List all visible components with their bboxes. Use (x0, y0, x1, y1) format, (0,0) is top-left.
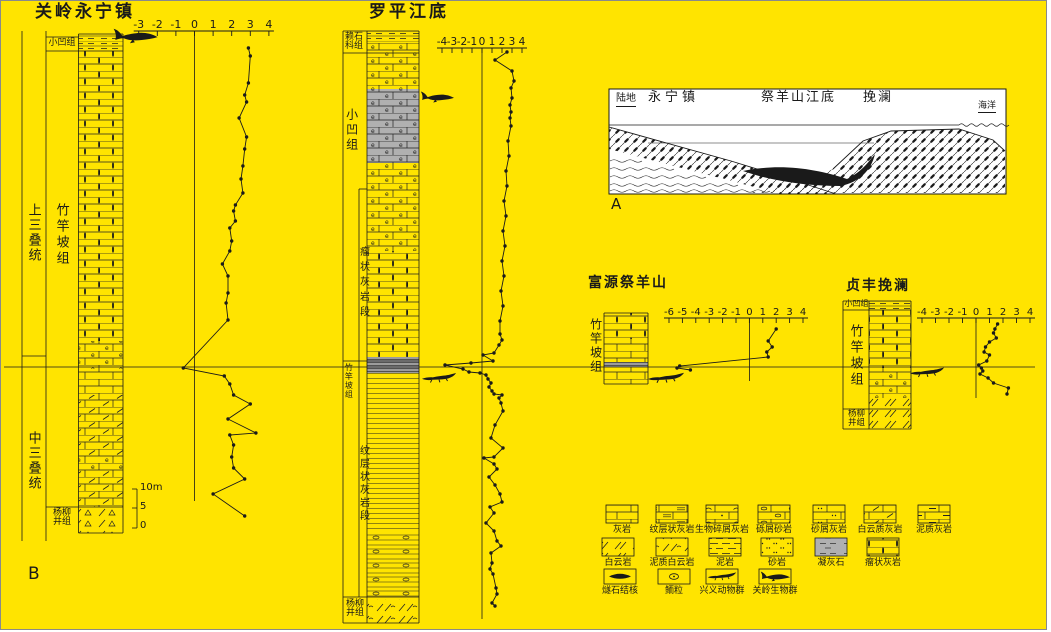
axis-tick-label: -2 (718, 307, 728, 318)
axis-tick-label: 4 (265, 18, 272, 31)
zhenfeng-isotope-curve: -4-3-2-101234 (917, 307, 1035, 398)
axis-tick-label: -6 (664, 307, 674, 318)
zhenfeng-column (869, 301, 911, 429)
chert-nodule-icon (609, 574, 631, 579)
luoping-xiaowa-fm-label: 小凹组 (345, 108, 358, 153)
axis-tick-label: 4 (1027, 307, 1033, 318)
luoping-crocodile-icon (422, 373, 456, 382)
axis-tick-label: -2 (457, 36, 467, 48)
luoping-zhuganpo-fm-label: 竹竿坡组 (344, 363, 352, 399)
section-title-guanling: 关岭永宁镇 (35, 4, 135, 22)
axis-tick-label: 0 (191, 18, 198, 31)
legend-item-label: 生物碎屑灰岩 (695, 526, 749, 535)
luoping-isotope-curve: -4-3-2-101234 (437, 36, 527, 619)
guanling-yangliujing-fm-label: 杨柳 井组 (46, 509, 78, 528)
legend-item-label: 关岭生物群 (752, 587, 797, 596)
legend-item-label: 白云岩 (604, 559, 631, 568)
legend-item-label: 砾屑砂岩 (756, 526, 792, 535)
axis-tick-label: -2 (152, 18, 163, 31)
stratigraphic-correlation-figure: e e e e (0, 0, 1047, 630)
guanling-xiaowa-fm-label: 小凹组 (46, 39, 78, 48)
axis-tick-label: -4 (691, 307, 701, 318)
axis-tick-label: -2 (944, 307, 954, 318)
legend-item-label: 燧石结核 (602, 587, 638, 596)
xingyi-fauna-crocodile-icon (708, 572, 737, 580)
axis-tick-label: 0 (479, 36, 486, 48)
legend-item-label: 泥质白云岩 (649, 559, 694, 568)
axis-tick-label: -4 (917, 307, 927, 318)
zhenfeng-zhuganpo-fm-label: 竹竿坡组 (848, 324, 862, 388)
scale-bar-5-label: 5 (140, 502, 146, 513)
axis-tick-label: 1 (986, 307, 992, 318)
section-title-fuyuan: 富源祭羊山 (588, 276, 668, 291)
legend-item-label: 纹层状灰岩 (649, 526, 694, 535)
cross-section-land-label: 陆地 (616, 94, 636, 107)
luoping-nodular-member-label: 瘤状灰岩段 (357, 246, 368, 321)
axis-tick-label: -3 (447, 36, 457, 48)
axis-tick-label: -1 (731, 307, 741, 318)
panel-a-label: A (611, 197, 621, 213)
luoping-ichthyosaur-icon (421, 91, 454, 102)
zhenfeng-crocodile-icon (910, 368, 944, 377)
axis-tick-label: -3 (931, 307, 941, 318)
legend-item-label: 泥岩 (716, 559, 734, 568)
axis-tick-label: -1 (467, 36, 477, 48)
axis-tick-label: 3 (786, 307, 792, 318)
axis-tick-label: -5 (677, 307, 687, 318)
axis-tick-label: 1 (489, 36, 496, 48)
fuyuan-crocodile-icon (648, 373, 684, 383)
luoping-laminated-member-label: 纹层状灰岩段 (357, 445, 368, 523)
section-title-luoping: 罗平江底 (369, 4, 449, 22)
luoping-column (367, 31, 419, 623)
axis-tick-label: 0 (746, 307, 752, 318)
scale-bar-0-label: 0 (140, 521, 146, 532)
luoping-laishike-fm-label: 赖石 科组 (342, 33, 366, 52)
guanling-biota-ichthyosaur-icon (761, 572, 790, 582)
legend-item-label: 凝灰石 (817, 559, 844, 568)
axis-tick-label: 3 (1013, 307, 1019, 318)
cross-section-sea-label: 海洋 (978, 102, 996, 113)
legend-item-label: 砂屑灰岩 (811, 526, 847, 535)
guanling-column (79, 34, 124, 533)
axis-tick-label: 3 (247, 18, 254, 31)
legend-item-label: 灰岩 (613, 526, 631, 535)
axis-tick-label: 2 (1000, 307, 1006, 318)
axis-tick-label: -3 (704, 307, 714, 318)
era-middle-triassic-label: 中三叠统 (26, 431, 40, 491)
axis-tick-label: -1 (958, 307, 968, 318)
era-upper-triassic-label: 上三叠统 (26, 203, 40, 263)
axis-tick-label: 1 (760, 307, 766, 318)
fuyuan-zhuganpo-fm-label: 竹竿坡组 (589, 318, 602, 374)
legend-item-label: 泥质灰岩 (916, 526, 952, 535)
zhenfeng-xiaowa-fm-label: 小凹组 (844, 300, 869, 308)
axis-tick-label: -1 (170, 18, 181, 31)
axis-tick-label: 4 (519, 36, 526, 48)
axis-tick-label: 1 (210, 18, 217, 31)
panel-b-label: B (28, 566, 40, 584)
cross-section-yongning-label: 永宁镇 (648, 91, 699, 105)
axis-tick-label: 3 (509, 36, 516, 48)
fuyuan-isotope-curve: -6-5-4-3-2-101234 (664, 307, 808, 381)
guanling-isotope-curve: -3-2-101234 (133, 18, 274, 518)
cross-section-jiyangshan-jiangdi-label: 祭羊山江底 (761, 91, 836, 105)
axis-tick-label: 2 (499, 36, 506, 48)
legend-item-label: 兴义动物群 (699, 587, 744, 596)
axis-tick-label: 4 (800, 307, 806, 318)
cross-section-wanlan-label: 挽澜 (863, 91, 893, 105)
legend-item-label: 瘤状灰岩 (865, 559, 901, 568)
fuyuan-column (604, 313, 648, 384)
axis-tick-label: 0 (973, 307, 979, 318)
scale-bar-10m-label: 10m (140, 483, 162, 494)
section-title-zhenfeng: 贞丰挽澜 (846, 279, 910, 294)
legend-item-label: 鲕粒 (665, 587, 683, 596)
axis-tick-label: 2 (228, 18, 235, 31)
legend-item-label: 白云质灰岩 (857, 526, 902, 535)
legend-item-label: 砂岩 (768, 559, 786, 568)
luoping-yangliujing-fm-label: 杨柳 井组 (343, 600, 367, 619)
axis-tick-label: 2 (773, 307, 779, 318)
zhenfeng-yangliujing-fm-label: 杨柳 井组 (844, 410, 869, 428)
legend-swatches (602, 505, 950, 584)
guanling-zhuganpo-fm-label: 竹竿坡组 (54, 203, 68, 267)
